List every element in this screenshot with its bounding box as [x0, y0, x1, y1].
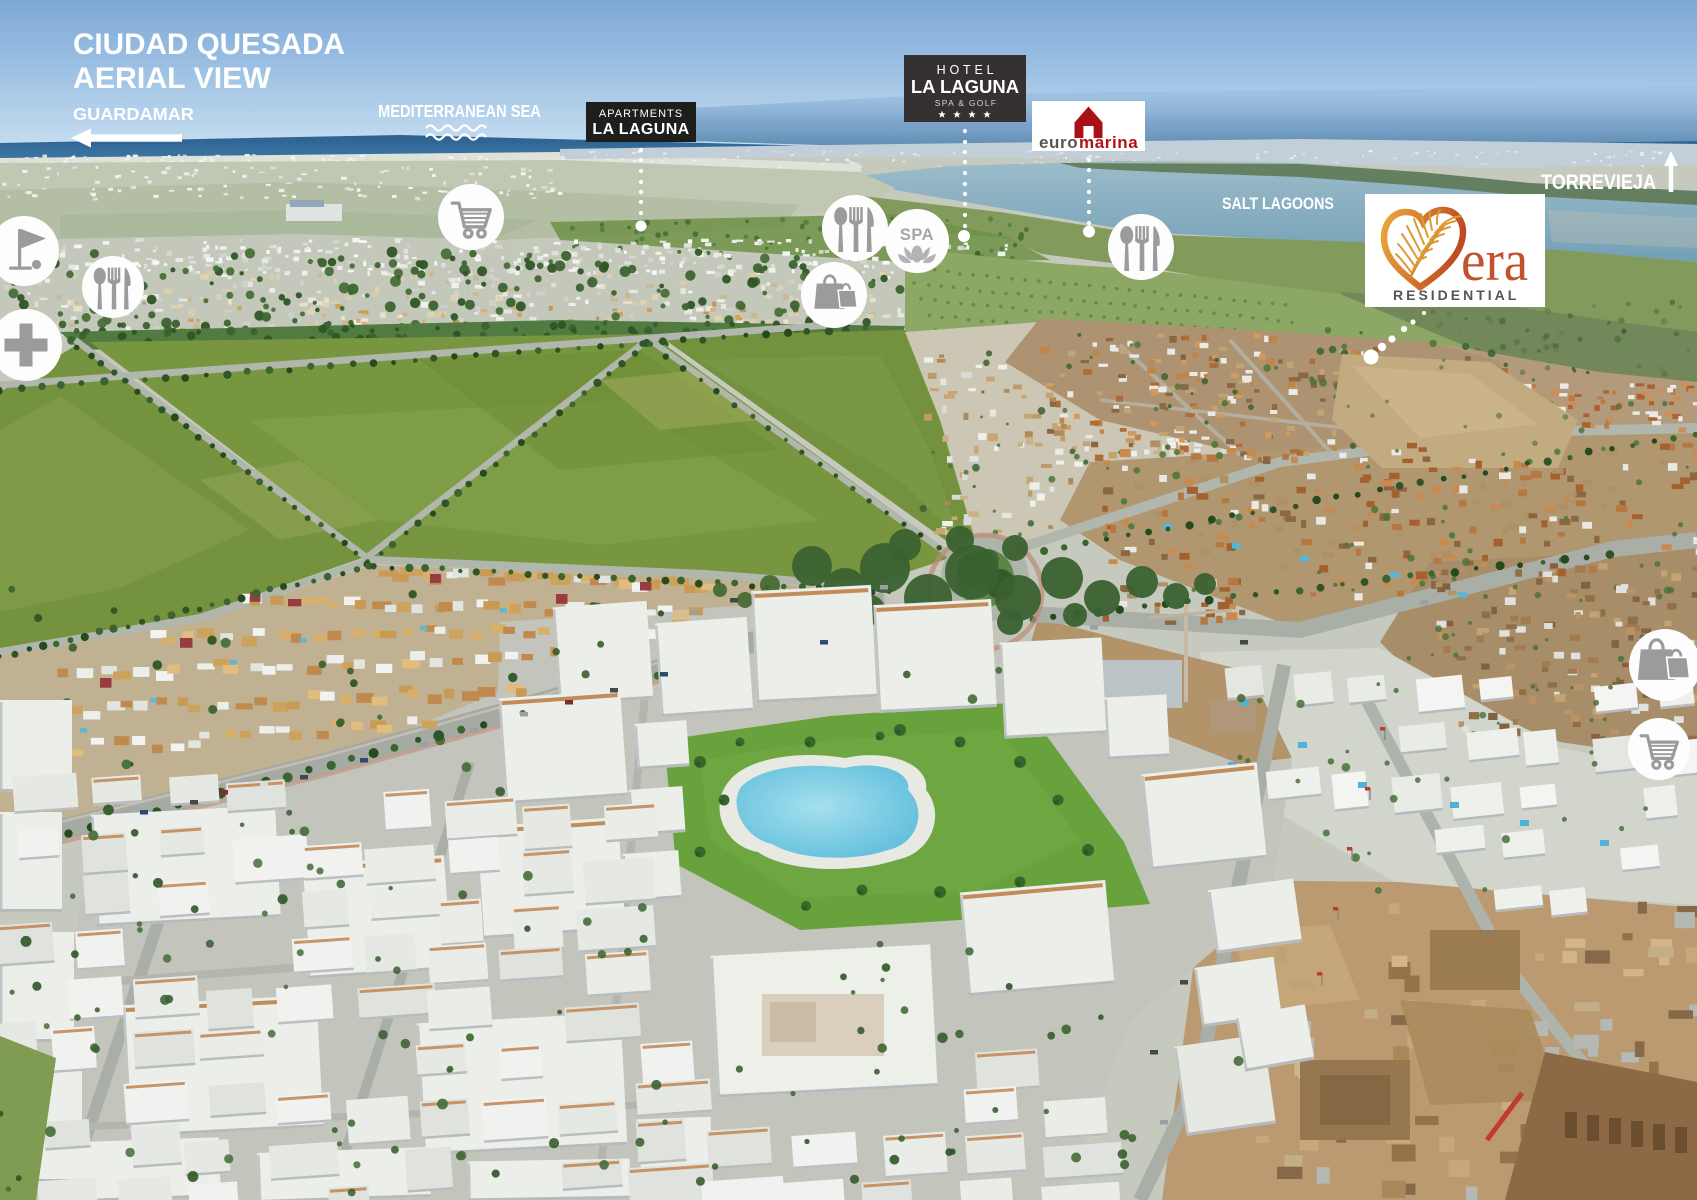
- svg-text:GUARDAMAR: GUARDAMAR: [73, 104, 194, 124]
- svg-text:euro: euro: [1039, 133, 1078, 152]
- svg-text:MEDITERRANEAN SEA: MEDITERRANEAN SEA: [378, 102, 541, 122]
- svg-text:SALT LAGOONS: SALT LAGOONS: [1222, 195, 1334, 213]
- svg-text:LA LAGUNA: LA LAGUNA: [911, 76, 1019, 97]
- svg-text:RESIDENTIAL: RESIDENTIAL: [1393, 287, 1519, 303]
- svg-text:LA LAGUNA: LA LAGUNA: [592, 121, 689, 138]
- svg-text:AERIAL VIEW: AERIAL VIEW: [73, 62, 271, 95]
- svg-text:APARTMENTS: APARTMENTS: [599, 108, 683, 120]
- svg-text:era: era: [1461, 230, 1528, 294]
- svg-text:SPA: SPA: [900, 226, 934, 244]
- svg-text:marina: marina: [1079, 133, 1138, 152]
- svg-text:SPA & GOLF: SPA & GOLF: [935, 98, 997, 108]
- svg-text:CIUDAD QUESADA: CIUDAD QUESADA: [73, 28, 345, 61]
- svg-text:HOTEL: HOTEL: [937, 63, 998, 77]
- svg-text:TORREVIEJA: TORREVIEJA: [1541, 171, 1656, 195]
